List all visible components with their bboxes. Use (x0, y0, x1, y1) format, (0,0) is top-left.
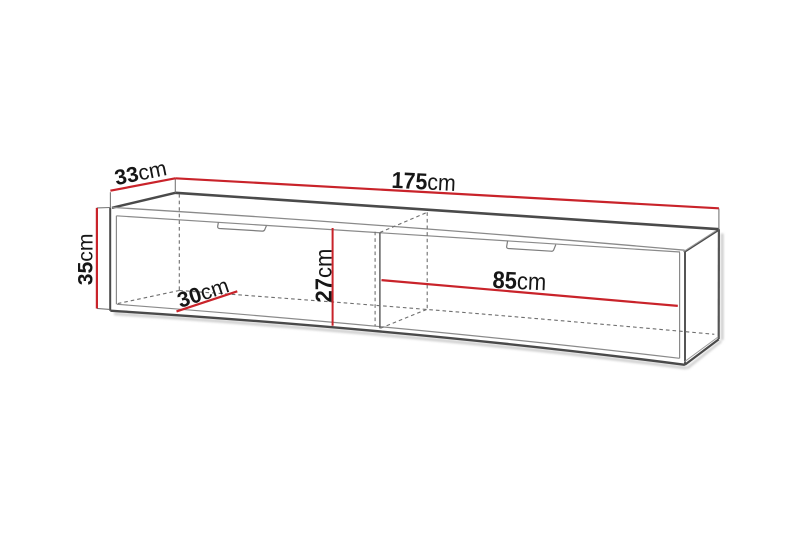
svg-text:30cm: 30cm (174, 272, 232, 312)
svg-text:27cm: 27cm (310, 249, 337, 303)
svg-text:85cm: 85cm (492, 266, 547, 296)
svg-text:175cm: 175cm (391, 167, 456, 196)
svg-text:33cm: 33cm (113, 156, 169, 190)
svg-text:35cm: 35cm (75, 233, 98, 285)
